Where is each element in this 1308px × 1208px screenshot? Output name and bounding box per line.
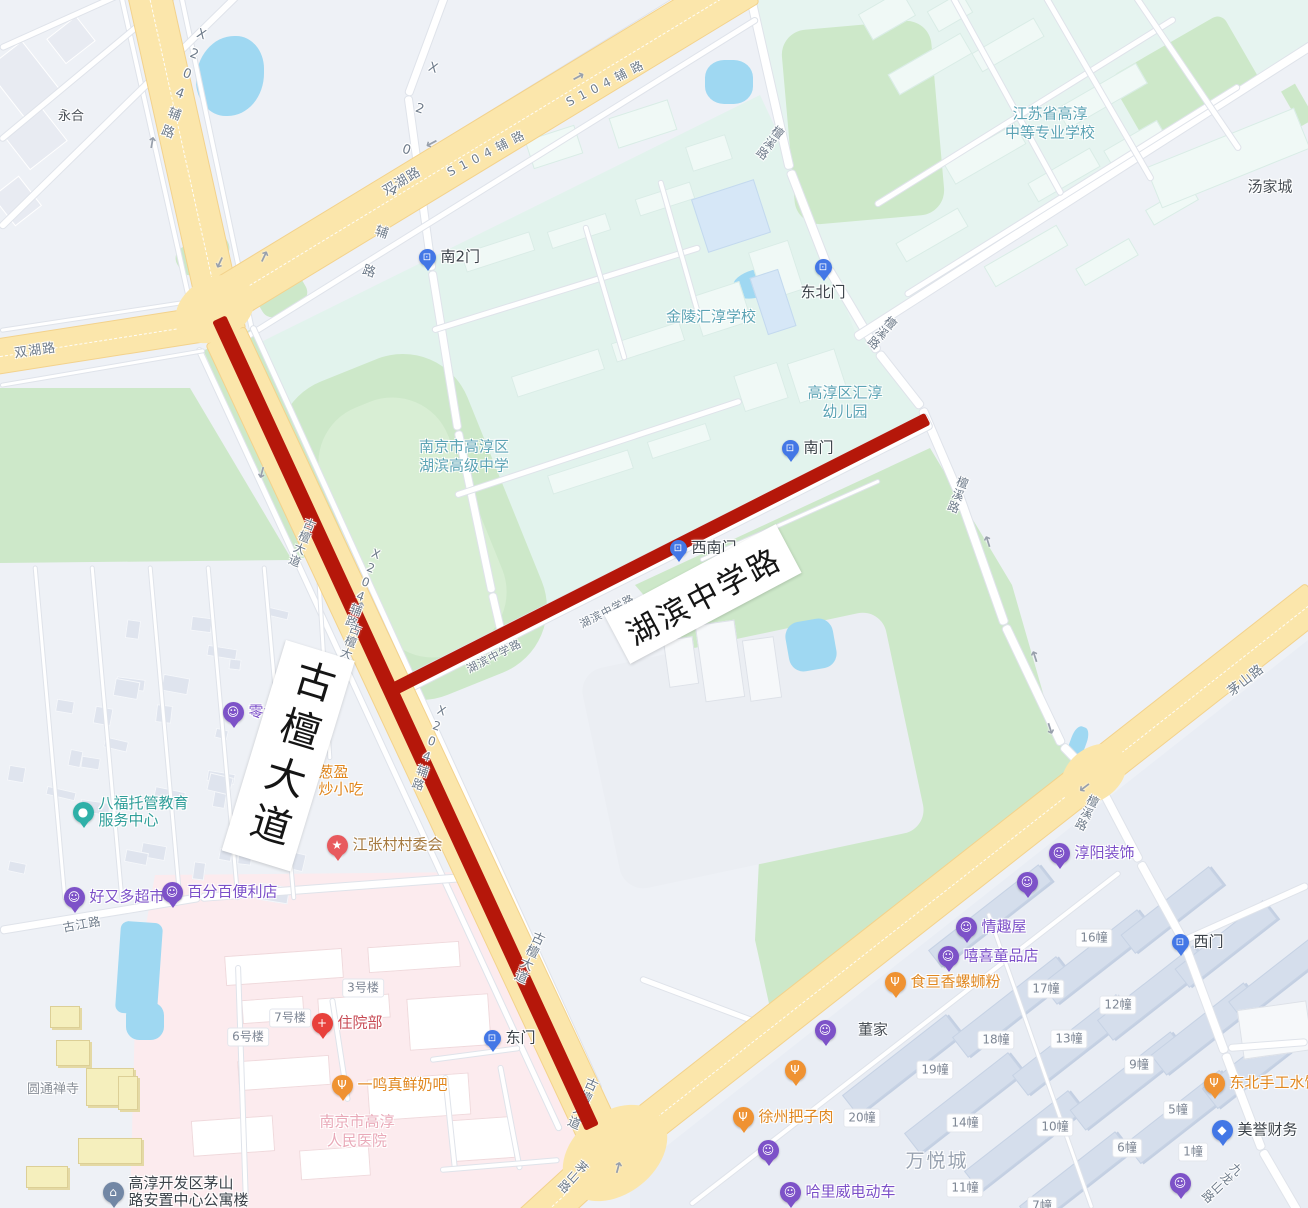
- poi-label[interactable]: 哈里威电动车: [806, 1183, 896, 1200]
- poi-marker-cross[interactable]: +: [312, 1013, 333, 1034]
- poi-label[interactable]: 东北门: [800, 284, 845, 301]
- hospital-building: [451, 1116, 516, 1162]
- temple-building: [50, 1006, 80, 1028]
- hospital-building: [406, 993, 491, 1051]
- map-canvas[interactable]: 双湖路双湖路S104辅路S104辅路X204辅路X204辅路X204辅路X204…: [0, 0, 1308, 1208]
- pond: [783, 616, 839, 674]
- building-number-label: 11幢: [946, 1179, 983, 1198]
- poi-label[interactable]: 江张村村委会: [353, 836, 443, 853]
- poi-marker-food[interactable]: Ψ: [785, 1060, 806, 1081]
- poi-label[interactable]: 食亘香螺蛳粉: [911, 973, 1001, 990]
- poi-label[interactable]: 西门: [1194, 933, 1224, 950]
- village-building: [125, 620, 141, 641]
- area-name-label: 圆通禅寺: [27, 1082, 79, 1098]
- area-name-label: 金陵汇淳学校: [666, 308, 756, 327]
- poi-label[interactable]: 高淳开发区茅山路安置中心公寓楼: [129, 1175, 249, 1208]
- area-name-label: 永合: [58, 109, 84, 125]
- poi-marker-bag[interactable]: ☺: [956, 917, 977, 938]
- village-building: [113, 678, 141, 700]
- minor-road: [33, 565, 68, 900]
- hospital-building: [237, 1055, 331, 1091]
- area-name-label: 江苏省高淳中等专业学校: [1005, 104, 1095, 142]
- poi-marker-food[interactable]: Ψ: [332, 1075, 353, 1096]
- building-number-label: 3号楼: [342, 979, 384, 998]
- campus-building: [1075, 238, 1139, 286]
- poi-label[interactable]: 美誉财务: [1238, 1121, 1298, 1138]
- village-building: [207, 645, 238, 661]
- poi-label[interactable]: 好又多超市: [90, 888, 165, 905]
- building-number-label: 13幢: [1050, 1030, 1087, 1049]
- building-number-label: 7号楼: [269, 1009, 311, 1028]
- village-building: [7, 765, 26, 784]
- poi-marker-gate[interactable]: ⊡: [1172, 934, 1189, 951]
- area-name-label: 南京市高淳区湖滨高级中学: [419, 437, 509, 475]
- area-name-label: 董家: [858, 1021, 888, 1040]
- minor-road: [90, 565, 125, 900]
- hospital-building: [191, 1115, 275, 1157]
- building-number-label: 6号楼: [227, 1028, 269, 1047]
- temple-building: [26, 1166, 68, 1188]
- poi-marker-bag[interactable]: ☺: [64, 887, 85, 908]
- village-building: [192, 862, 207, 881]
- hospital-building: [299, 1146, 371, 1181]
- poi-marker-food[interactable]: Ψ: [885, 972, 906, 993]
- poi-label[interactable]: 南门: [804, 439, 834, 456]
- poi-marker-star[interactable]: ★: [327, 835, 348, 856]
- poi-marker-edu[interactable]: ●: [73, 802, 94, 823]
- poi-label[interactable]: 东门: [506, 1029, 536, 1046]
- village-building: [45, 785, 76, 801]
- temple-building: [56, 1040, 90, 1066]
- poi-marker-bag[interactable]: ☺: [223, 702, 244, 723]
- temple-building: [118, 1076, 138, 1110]
- poi-marker-gate[interactable]: ⊡: [670, 540, 687, 557]
- poi-marker-bag[interactable]: ☺: [1170, 1173, 1191, 1194]
- poi-label[interactable]: 南2门: [441, 248, 481, 265]
- poi-label[interactable]: 一鸣真鲜奶吧: [358, 1076, 448, 1093]
- poi-label[interactable]: 东北手工水饺: [1230, 1074, 1308, 1091]
- village-building: [55, 698, 74, 713]
- village-building: [67, 749, 83, 768]
- poi-label[interactable]: 淳阳装饰: [1075, 844, 1135, 861]
- building: [0, 40, 60, 117]
- building-number-label: 20幢: [843, 1109, 880, 1128]
- building-number-label: 10幢: [1036, 1118, 1073, 1137]
- poi-label[interactable]: 徐州把子肉: [759, 1108, 834, 1125]
- poi-label[interactable]: 情趣屋: [982, 918, 1027, 935]
- poi-marker-bag[interactable]: ☺: [162, 882, 183, 903]
- building-number-label: 12幢: [1099, 996, 1136, 1015]
- building-number-label: 9幢: [1124, 1056, 1154, 1075]
- poi-marker-bag[interactable]: ☺: [815, 1020, 836, 1041]
- area-name-label: 南京市高淳人民医院: [319, 1112, 394, 1150]
- building-number-label: 16幢: [1075, 929, 1112, 948]
- poi-marker-gate[interactable]: ⊡: [782, 440, 799, 457]
- building-number-label: 17幢: [1027, 980, 1064, 999]
- poi-marker-gate[interactable]: ⊡: [484, 1030, 501, 1047]
- poi-marker-building[interactable]: ⌂: [103, 1182, 124, 1203]
- village-building: [7, 860, 27, 875]
- poi-marker-bag[interactable]: ☺: [758, 1140, 779, 1161]
- pond: [705, 60, 753, 104]
- poi-label[interactable]: 住院部: [338, 1014, 383, 1031]
- temple-building: [78, 1138, 142, 1164]
- building-number-label: 19幢: [916, 1061, 953, 1080]
- village-building: [161, 673, 191, 694]
- poi-label[interactable]: 嘻喜童品店: [964, 947, 1039, 964]
- poi-label[interactable]: 八福托管教育服务中心: [99, 795, 189, 830]
- poi-marker-gate[interactable]: ⊡: [815, 259, 832, 276]
- building-number-label: 14幢: [946, 1114, 983, 1133]
- building-number-label: 6幢: [1112, 1139, 1142, 1158]
- poi-label[interactable]: 葱盈炒小吃: [319, 764, 364, 799]
- building-number-label: 7幢: [1027, 1197, 1057, 1208]
- poi-label[interactable]: 百分百便利店: [188, 883, 278, 900]
- poi-marker-bag[interactable]: ☺: [1017, 872, 1038, 893]
- area-name-label: 汤家城: [1247, 178, 1292, 197]
- building-number-label: 5幢: [1163, 1101, 1193, 1120]
- area-name-label: 万悦城: [905, 1150, 968, 1174]
- building: [1237, 1000, 1308, 1059]
- poi-marker-bag[interactable]: ☺: [1049, 843, 1070, 864]
- building-number-label: 18幢: [977, 1031, 1014, 1050]
- village-building: [80, 755, 101, 770]
- building: [663, 636, 699, 688]
- poi-marker-bag[interactable]: ☺: [780, 1182, 801, 1203]
- poi-marker-gate[interactable]: ⊡: [419, 249, 436, 266]
- village-building: [124, 849, 149, 866]
- area-name-label: 高淳区汇淳幼儿园: [807, 383, 882, 421]
- poi-marker-food[interactable]: Ψ: [1204, 1073, 1225, 1094]
- building-number-label: 1幢: [1178, 1143, 1208, 1162]
- poi-marker-bag[interactable]: ☺: [938, 946, 959, 967]
- poi-marker-finance[interactable]: ◆: [1212, 1120, 1233, 1141]
- pond: [126, 1002, 164, 1040]
- poi-marker-food[interactable]: Ψ: [733, 1107, 754, 1128]
